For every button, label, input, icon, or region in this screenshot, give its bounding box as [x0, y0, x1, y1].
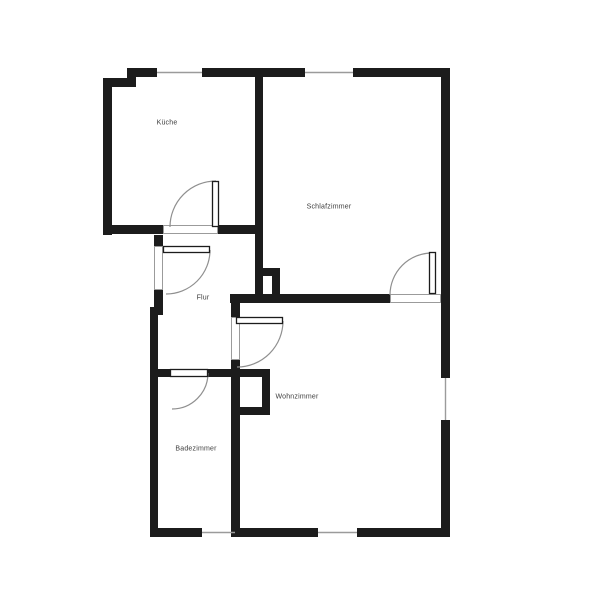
wall-segment [150, 307, 158, 537]
door-swing-arc [166, 250, 210, 294]
door-swing-arc [390, 253, 432, 295]
door-leaf [164, 247, 210, 253]
door-threshold [164, 226, 218, 234]
wall-segment [231, 303, 240, 317]
door-leaf [213, 182, 219, 227]
door-swing-arc [237, 321, 283, 367]
wall-segment [255, 77, 263, 303]
door-leaf [237, 318, 283, 324]
wall-segment [103, 225, 163, 234]
wall-segment [154, 290, 163, 307]
wall-segment [127, 68, 136, 87]
room-label-schlafzimmer: Schlafzimmer [307, 204, 352, 211]
door-leaf [171, 370, 208, 377]
door-swing-arc [170, 181, 216, 227]
wall-segment [231, 360, 240, 537]
wall-segment [208, 369, 231, 377]
room-label-badezimmer: Badezimmer [175, 446, 216, 453]
wall-segment [230, 294, 390, 303]
wall-segment [150, 369, 170, 377]
door-leaf [430, 253, 436, 294]
room-label-wohnzimmer: Wohnzimmer [275, 394, 318, 401]
floorplan-drawing [0, 0, 600, 600]
room-label-flur: Flur [197, 295, 210, 302]
wall-segment [235, 528, 318, 537]
wall-segment [154, 235, 163, 246]
door-threshold [391, 295, 441, 303]
wall-segment [357, 528, 450, 537]
wall-segment [353, 68, 450, 77]
door-threshold [155, 247, 163, 290]
wall-segment [240, 407, 270, 415]
door-swing-arc [172, 373, 208, 409]
wall-segment [103, 78, 112, 235]
wall-segment [202, 68, 305, 77]
floorplan-canvas: Küche Schlafzimmer Flur Wohnzimmer Badez… [0, 0, 600, 600]
wall-segment [272, 268, 280, 303]
room-label-kueche: Küche [157, 120, 178, 127]
wall-segment [150, 307, 163, 315]
wall-segment [441, 420, 450, 537]
wall-segment [441, 68, 450, 378]
